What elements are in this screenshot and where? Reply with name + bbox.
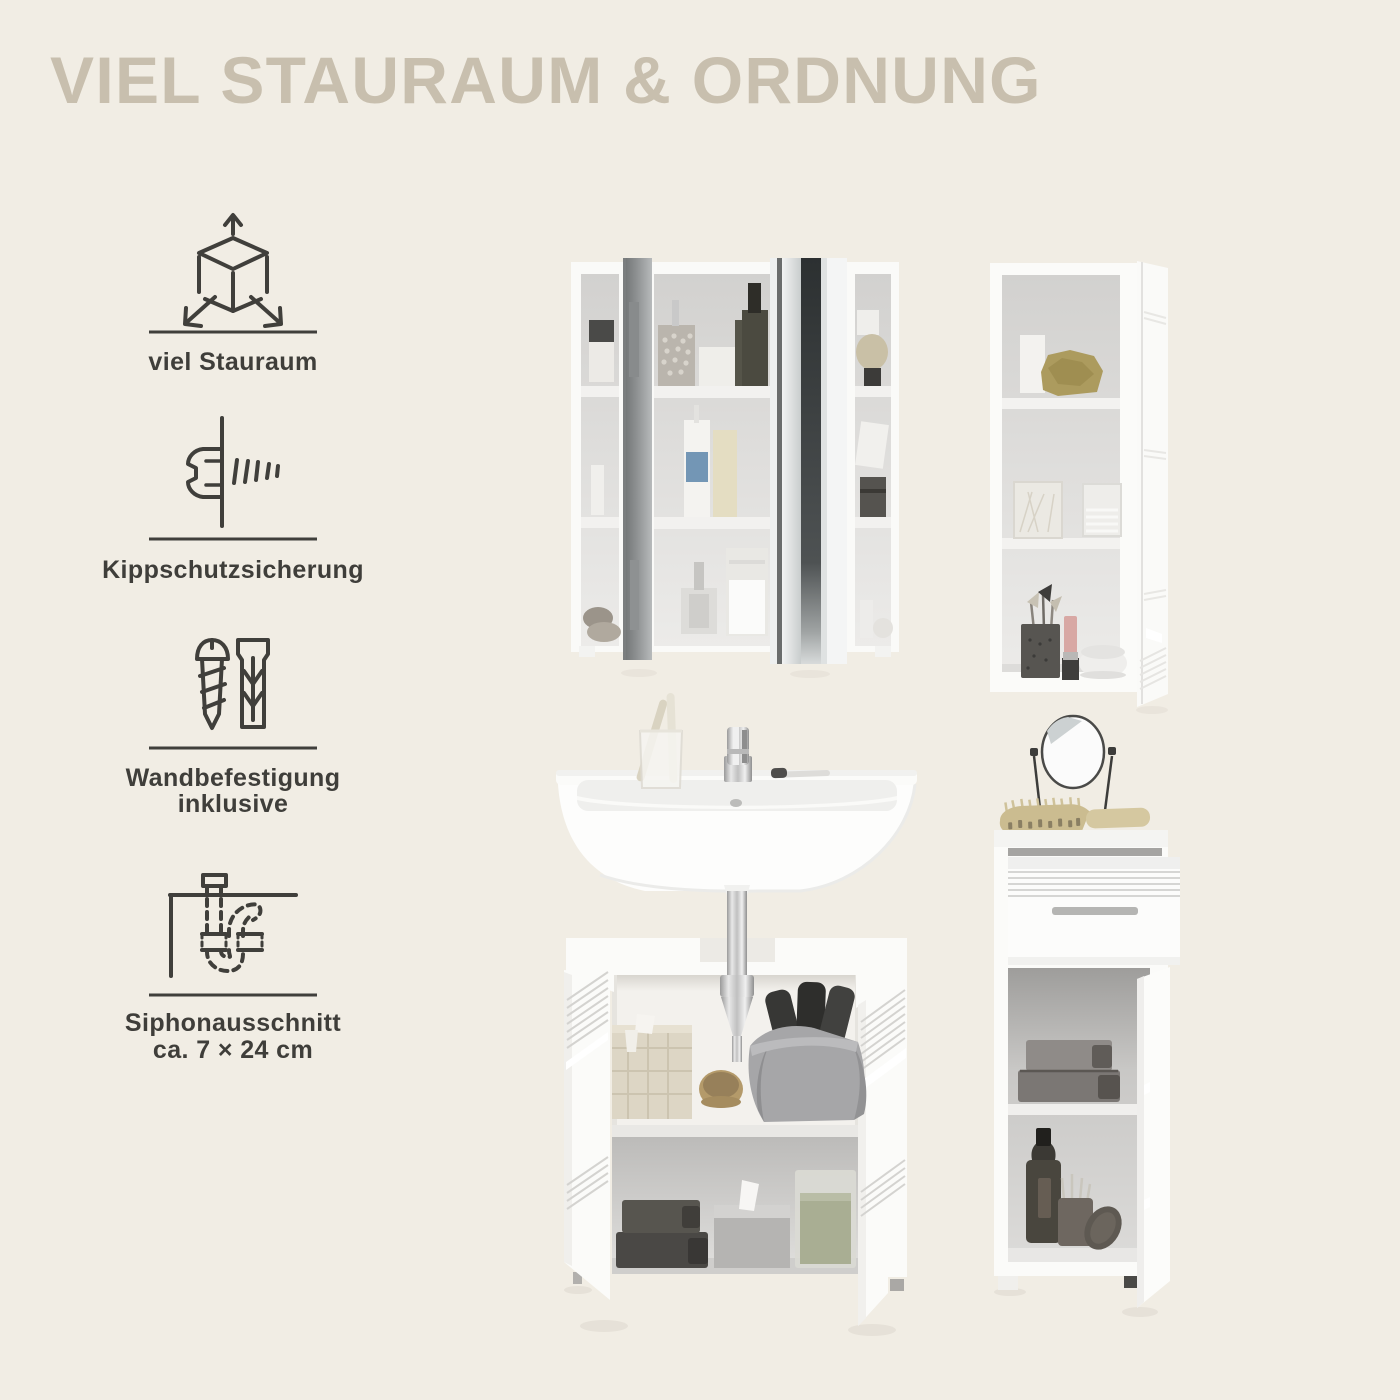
svg-text:viel Stauraum: viel Stauraum — [148, 348, 317, 376]
svg-text:inklusive: inklusive — [178, 790, 289, 818]
svg-text:Kippschutzsicherung: Kippschutzsicherung — [102, 556, 364, 584]
svg-text:VIEL STAURAUM & ORDNUNG: VIEL STAURAUM & ORDNUNG — [50, 43, 1042, 117]
svg-text:Siphonausschnitt: Siphonausschnitt — [125, 1009, 341, 1037]
svg-text:Wandbefestigung: Wandbefestigung — [126, 764, 341, 792]
svg-text:ca. 7 × 24 cm: ca. 7 × 24 cm — [153, 1036, 313, 1064]
